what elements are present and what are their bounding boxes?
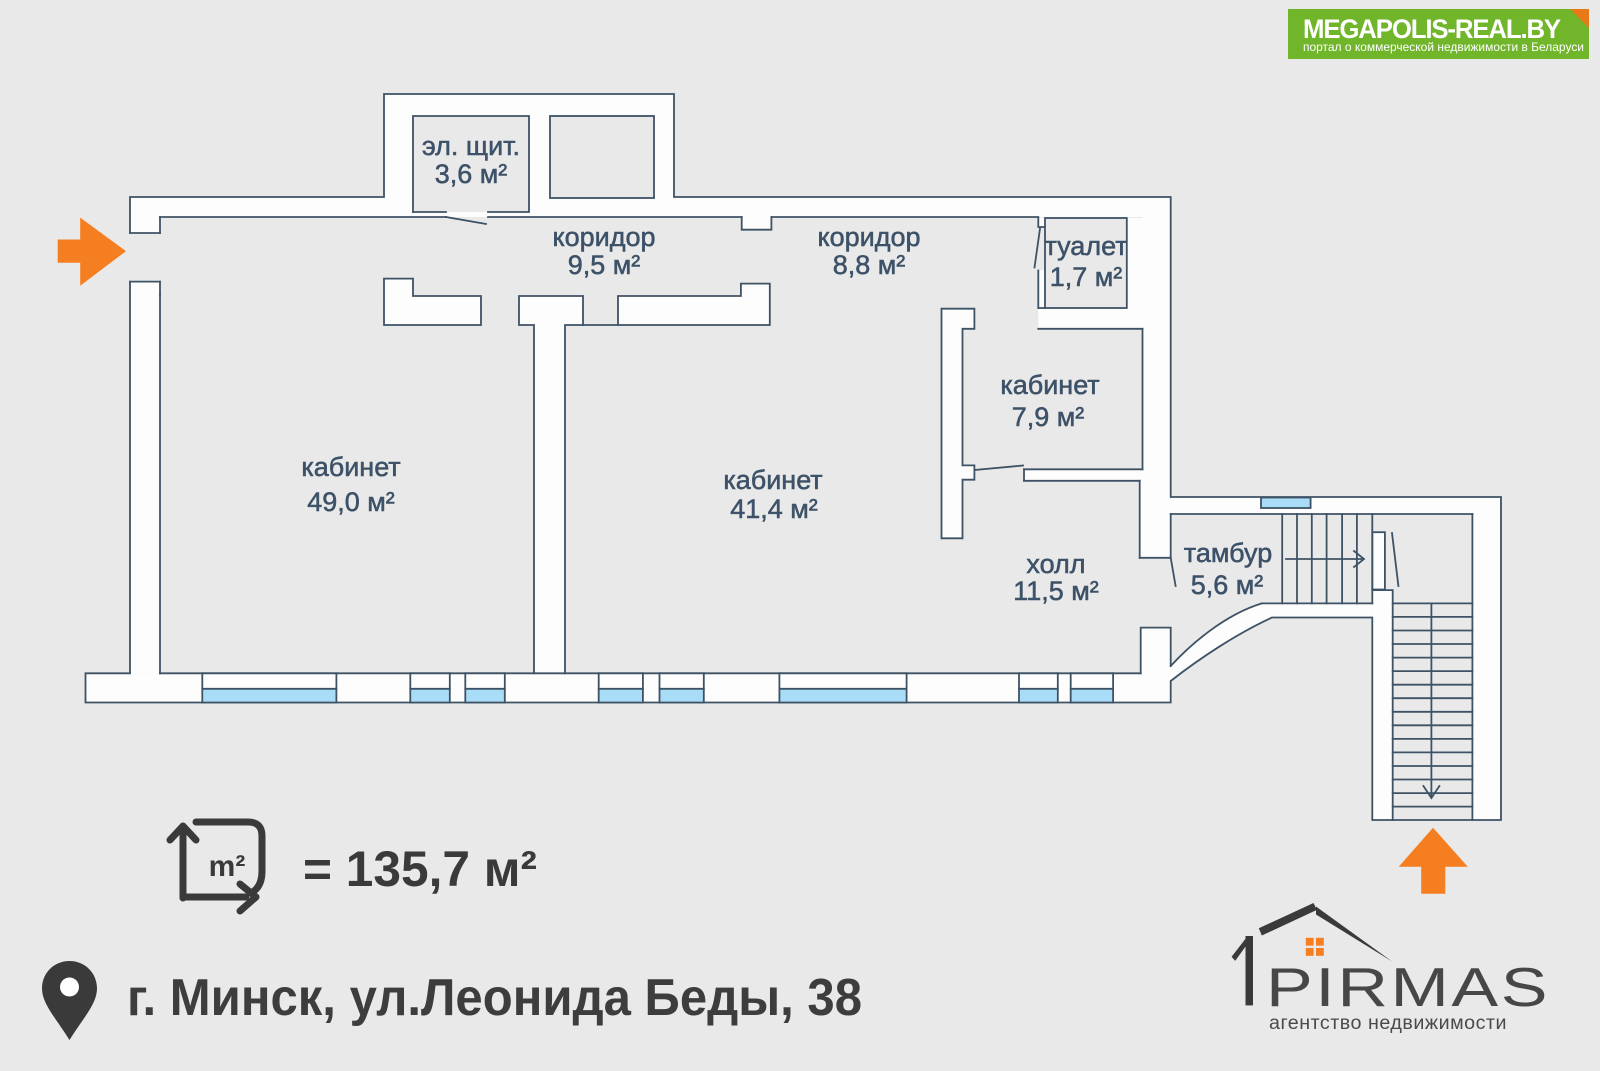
svg-text:г. Минск, ул.Леонида Беды, 38: г. Минск, ул.Леонида Беды, 38 — [127, 969, 862, 1027]
svg-text:49,0 м²: 49,0 м² — [307, 487, 395, 517]
svg-text:агентство недвижимости: агентство недвижимости — [1269, 1013, 1507, 1034]
svg-text:5,6 м²: 5,6 м² — [1191, 570, 1264, 600]
svg-text:тамбур: тамбур — [1184, 538, 1272, 568]
svg-text:9,5 м²: 9,5 м² — [568, 250, 641, 280]
svg-text:m²: m² — [209, 850, 246, 883]
svg-text:холл: холл — [1026, 549, 1085, 579]
svg-text:коридор: коридор — [817, 222, 920, 252]
svg-text:кабинет: кабинет — [301, 452, 400, 482]
svg-text:11,5 м²: 11,5 м² — [1013, 576, 1099, 606]
svg-text:кабинет: кабинет — [723, 465, 822, 495]
svg-text:41,4 м²: 41,4 м² — [730, 494, 818, 524]
svg-text:эл. щит.: эл. щит. — [422, 131, 520, 161]
svg-text:1,7 м²: 1,7 м² — [1050, 262, 1123, 292]
svg-text:портал о коммерческой недвижим: портал о коммерческой недвижимости в Бел… — [1303, 41, 1584, 54]
svg-text:= 135,7 м²: = 135,7 м² — [303, 841, 537, 897]
svg-text:кабинет: кабинет — [1000, 370, 1099, 400]
svg-text:8,8 м²: 8,8 м² — [833, 250, 906, 280]
svg-text:MEGAPOLIS-REAL.BY: MEGAPOLIS-REAL.BY — [1303, 14, 1561, 44]
svg-text:коридор: коридор — [552, 222, 655, 252]
svg-text:туалет: туалет — [1044, 231, 1127, 261]
svg-text:PIRMAS: PIRMAS — [1266, 956, 1550, 1018]
svg-text:3,6 м²: 3,6 м² — [435, 159, 508, 189]
svg-text:7,9 м²: 7,9 м² — [1012, 402, 1085, 432]
